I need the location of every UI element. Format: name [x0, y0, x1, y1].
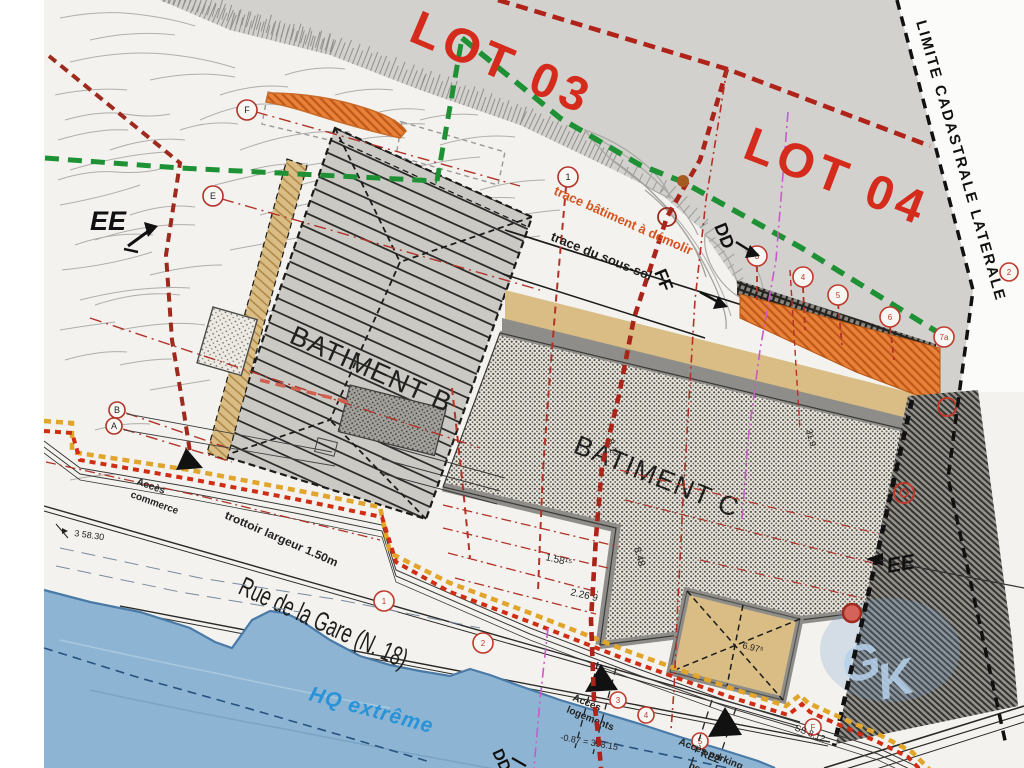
svg-text:6: 6 — [888, 313, 893, 322]
svg-text:2: 2 — [481, 639, 486, 648]
svg-text:A: A — [111, 421, 117, 431]
svg-text:E: E — [210, 191, 216, 201]
svg-text:EE: EE — [90, 206, 127, 236]
svg-text:3: 3 — [616, 696, 621, 705]
svg-text:4: 4 — [644, 711, 649, 720]
svg-text:B: B — [114, 405, 120, 415]
svg-text:1: 1 — [565, 172, 570, 182]
svg-text:4: 4 — [801, 273, 806, 282]
svg-text:1: 1 — [382, 597, 387, 606]
svg-text:2: 2 — [1007, 268, 1012, 277]
svg-text:5: 5 — [836, 291, 841, 300]
svg-text:F: F — [244, 105, 250, 115]
svg-text:7a: 7a — [940, 333, 949, 342]
